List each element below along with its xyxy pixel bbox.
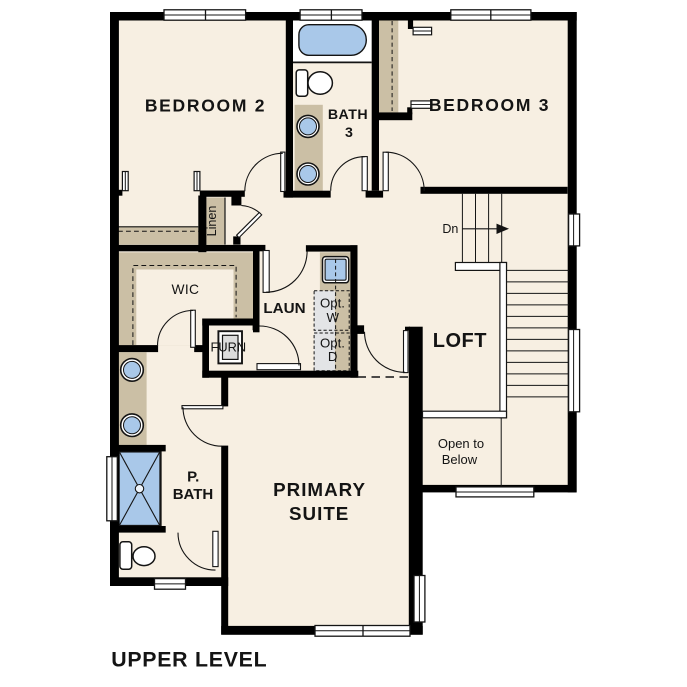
svg-text:D: D <box>328 349 338 364</box>
svg-text:Dn: Dn <box>442 222 458 236</box>
svg-text:FURN: FURN <box>211 340 247 355</box>
svg-text:Opt.: Opt. <box>320 295 345 310</box>
svg-text:BEDROOM 2: BEDROOM 2 <box>145 95 266 115</box>
svg-text:SUITE: SUITE <box>289 503 349 524</box>
svg-text:LAUN: LAUN <box>263 300 305 317</box>
svg-text:W: W <box>326 310 339 325</box>
svg-text:BATH: BATH <box>328 107 368 123</box>
svg-text:PRIMARY: PRIMARY <box>273 479 366 500</box>
svg-text:P.: P. <box>187 469 199 486</box>
svg-text:3: 3 <box>345 125 353 141</box>
svg-text:Linen: Linen <box>205 206 219 237</box>
svg-text:Open to: Open to <box>438 436 484 451</box>
svg-text:WIC: WIC <box>172 282 200 297</box>
svg-text:BEDROOM 3: BEDROOM 3 <box>429 95 550 115</box>
svg-text:BATH: BATH <box>173 486 214 503</box>
svg-text:Below: Below <box>442 452 478 467</box>
svg-text:UPPER LEVEL: UPPER LEVEL <box>111 648 267 672</box>
svg-text:LOFT: LOFT <box>433 330 487 352</box>
